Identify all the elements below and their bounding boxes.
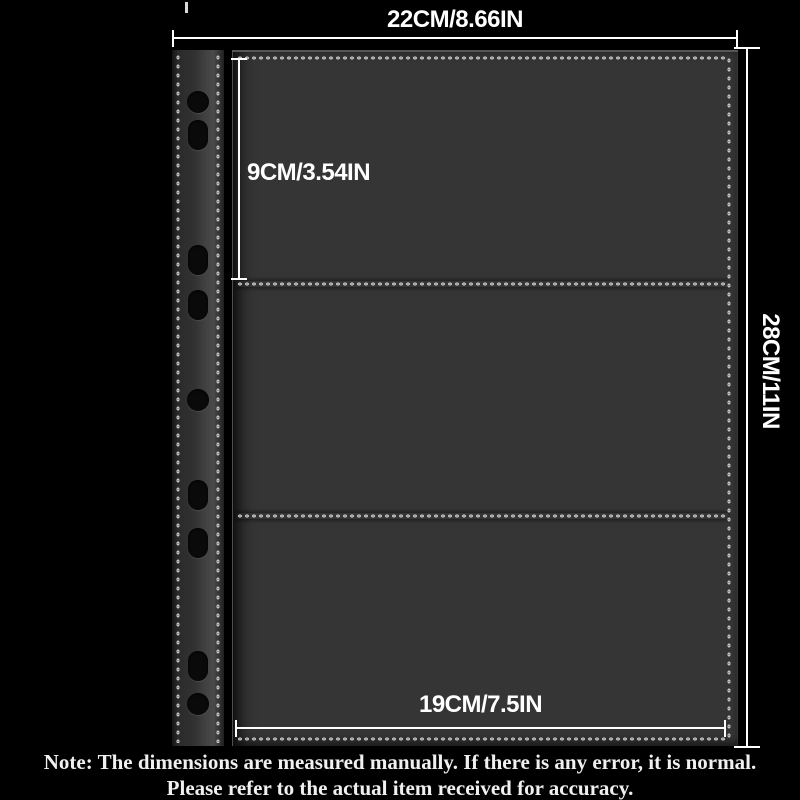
binder-hole (188, 120, 208, 150)
pocket-width-dimension-label: 19CM/7.5IN (235, 691, 726, 719)
product-dimension-image: 22CM/8.66IN 9CM/3.54IN 28CM/11IN 19CM/7.… (0, 0, 800, 800)
spine-stitch-column-left (175, 53, 181, 743)
pocket-seam-2 (236, 513, 728, 519)
width-dimension-label: 22CM/8.66IN (172, 6, 738, 34)
pocket-seam-1 (236, 281, 728, 287)
pocket-height-dimension-label: 9CM/3.54IN (247, 159, 370, 187)
binder-hole (187, 91, 209, 113)
binder-hole (188, 480, 208, 510)
binder-hole (188, 245, 208, 275)
note-line-1: Note: The dimensions are measured manual… (0, 750, 800, 775)
pocket-height-dimension-line (238, 58, 240, 280)
pocket-width-dimension-line (235, 727, 726, 729)
stitch-row-top (236, 55, 728, 61)
binder-hole (188, 290, 208, 320)
page-height-dimension-line (746, 47, 748, 748)
stitch-row-bottom (236, 736, 728, 742)
binder-hole (188, 651, 208, 681)
note-line-2: Please refer to the actual item received… (0, 776, 800, 800)
pocket-panel (232, 50, 738, 746)
stitch-column-right-edge (726, 56, 732, 740)
spine-stitch-column-right (215, 53, 221, 743)
binder-hole (187, 389, 209, 411)
binder-hole (188, 528, 208, 558)
binder-hole (187, 693, 209, 715)
binder-spine-strip (172, 50, 224, 746)
width-dimension-line (172, 37, 738, 39)
